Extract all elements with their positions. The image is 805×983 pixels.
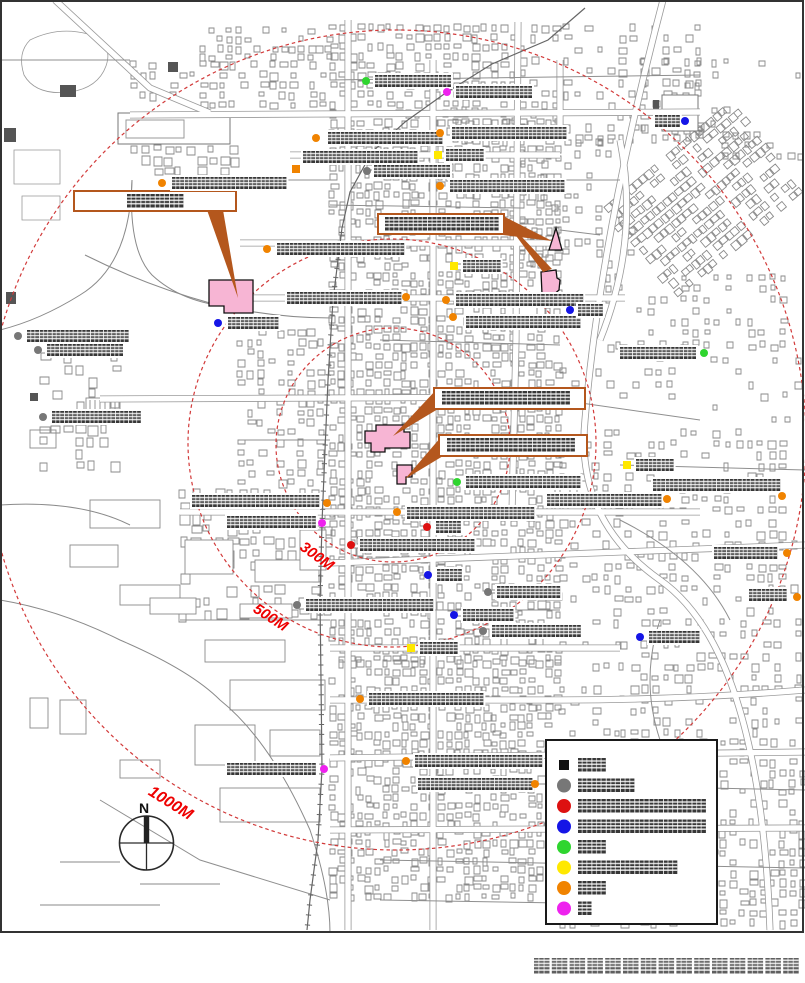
svg-text:N: N xyxy=(139,800,149,816)
